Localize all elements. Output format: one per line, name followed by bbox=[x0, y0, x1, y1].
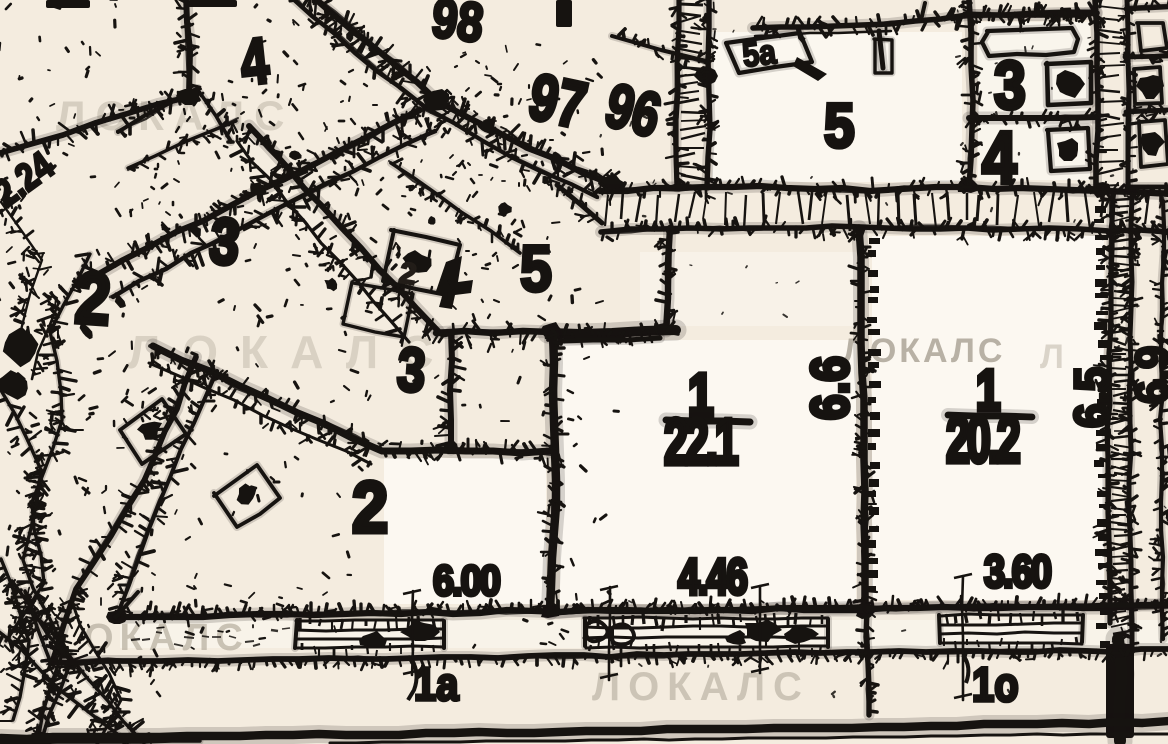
svg-text:22.1: 22.1 bbox=[664, 405, 738, 478]
svg-text:6.9: 6.9 bbox=[1127, 346, 1168, 404]
svg-text:2: 2 bbox=[352, 467, 388, 548]
svg-text:5: 5 bbox=[520, 233, 552, 306]
svg-text:5а: 5а bbox=[740, 32, 779, 74]
svg-text:Л: Л bbox=[1040, 338, 1064, 376]
svg-text:ЛОКАЛС: ЛОКАЛС bbox=[592, 665, 810, 709]
svg-text:4: 4 bbox=[982, 118, 1017, 199]
svg-text:20.2: 20.2 bbox=[946, 403, 1020, 476]
svg-text:4.46: 4.46 bbox=[678, 548, 747, 605]
svg-text:6.6: 6.6 bbox=[800, 356, 860, 420]
svg-text:6.5: 6.5 bbox=[1064, 367, 1118, 428]
svg-text:6.00: 6.00 bbox=[433, 556, 500, 605]
svg-text:3.60: 3.60 bbox=[984, 546, 1051, 597]
svg-text:3: 3 bbox=[395, 335, 428, 406]
svg-text:1а: 1а bbox=[414, 659, 459, 710]
svg-text:1о: 1о bbox=[972, 659, 1019, 712]
svg-text:2: 2 bbox=[73, 258, 113, 341]
svg-text:3: 3 bbox=[994, 48, 1026, 124]
svg-text:5: 5 bbox=[824, 92, 855, 161]
svg-text:98: 98 bbox=[429, 0, 487, 54]
